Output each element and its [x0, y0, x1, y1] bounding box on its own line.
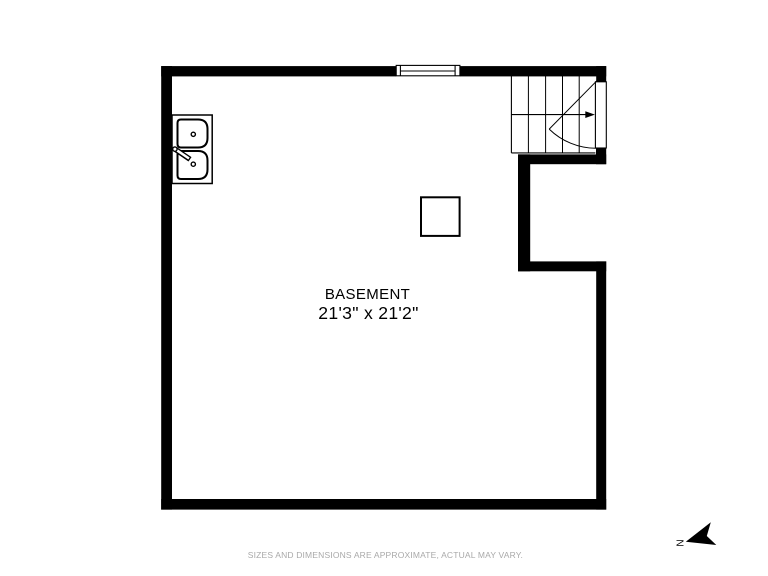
- svg-text:BASEMENT: BASEMENT: [325, 286, 410, 303]
- svg-text:21'3" x 21'2": 21'3" x 21'2": [318, 303, 418, 323]
- svg-text:N: N: [675, 539, 686, 546]
- svg-text:SIZES AND DIMENSIONS ARE APPRO: SIZES AND DIMENSIONS ARE APPROXIMATE, AC…: [248, 550, 523, 560]
